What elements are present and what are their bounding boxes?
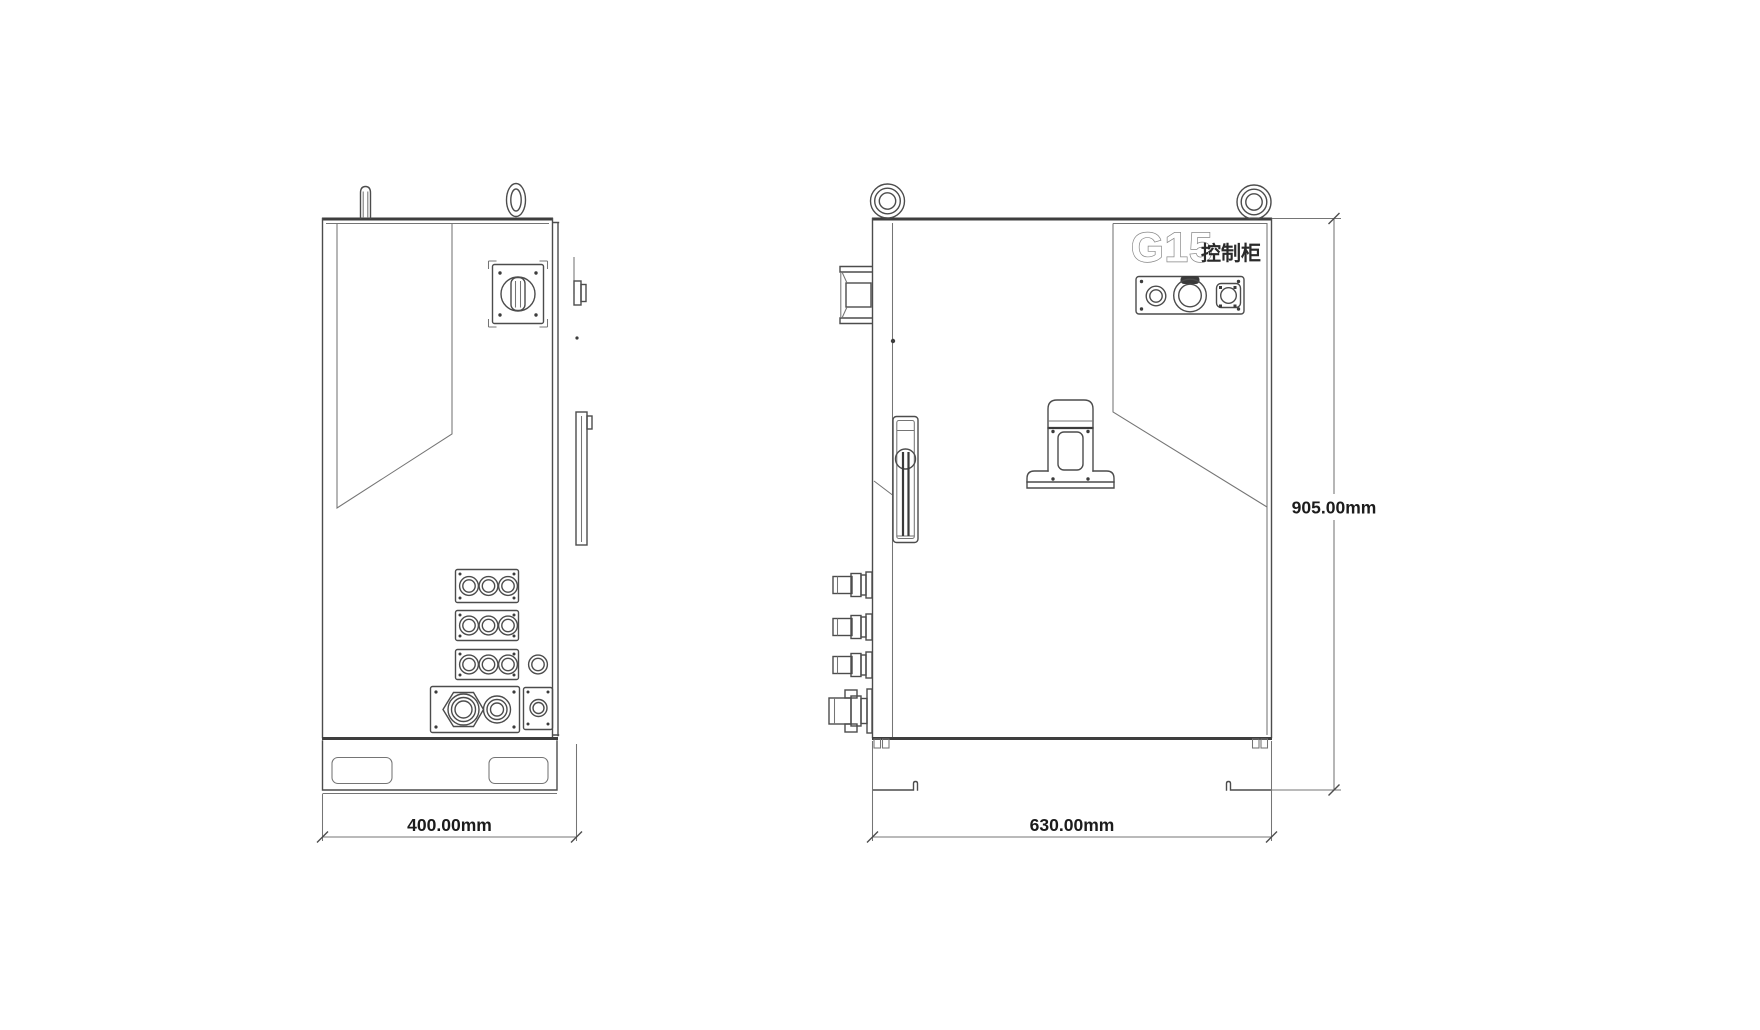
bottom-feet xyxy=(874,739,1268,748)
connector-circle xyxy=(460,655,479,674)
side-cabinet-outline xyxy=(322,219,559,739)
single-connector xyxy=(529,655,548,674)
wall-mount-lug xyxy=(840,267,872,324)
cabinet-type-label: 控制柜 xyxy=(1201,241,1261,265)
front-base-frame xyxy=(873,782,1271,791)
connector-circle xyxy=(479,655,498,674)
side-base xyxy=(323,741,558,794)
connector-circle xyxy=(479,577,498,596)
front-width-label: 630.00mm xyxy=(1030,815,1115,835)
cabinet-drawing: 400.00mm G15 控制柜 xyxy=(0,0,1760,1030)
connector-circle xyxy=(479,616,498,635)
technical-drawing-canvas: 400.00mm G15 控制柜 xyxy=(0,0,1760,1030)
door-pin-dot xyxy=(891,339,895,343)
connector-plate-3 xyxy=(456,650,519,680)
side-chamfer-panel xyxy=(337,224,452,509)
button-panel xyxy=(1136,276,1244,314)
side-width-label: 400.00mm xyxy=(407,815,492,835)
door-handle xyxy=(893,417,918,543)
lifting-pin xyxy=(361,187,371,219)
connector-circle xyxy=(460,577,479,596)
connector-circle xyxy=(499,655,518,674)
cable-gland-4-large xyxy=(829,689,872,733)
rotary-switch xyxy=(489,261,548,327)
side-view: 400.00mm xyxy=(318,184,593,843)
switch-knob xyxy=(501,277,535,311)
side-protrusions xyxy=(574,257,592,545)
front-cabinet-outline xyxy=(872,219,1272,739)
cable-gland-2 xyxy=(833,614,872,640)
pendant-hanger-bracket xyxy=(1027,400,1114,488)
lifting-ring-right xyxy=(1237,185,1271,219)
dim-front-height: 905.00mm xyxy=(1272,214,1376,796)
connector-circle xyxy=(460,616,479,635)
cable-gland-1 xyxy=(833,572,872,598)
connector-circle xyxy=(499,616,518,635)
lifting-ring-side xyxy=(507,184,526,217)
aux-connector-plate xyxy=(524,688,553,730)
lifting-ring-left xyxy=(871,184,905,218)
connector-circle xyxy=(499,577,518,596)
power-inlet-plate xyxy=(431,687,520,733)
square-receptacle xyxy=(1217,284,1241,308)
connector-plate-2 xyxy=(456,611,519,641)
front-height-label: 905.00mm xyxy=(1292,498,1377,518)
dim-front-width: 630.00mm xyxy=(868,741,1277,842)
connector-plate-1 xyxy=(456,570,519,603)
cable-gland-3 xyxy=(833,652,872,678)
front-view: G15 控制柜 xyxy=(829,184,1376,842)
